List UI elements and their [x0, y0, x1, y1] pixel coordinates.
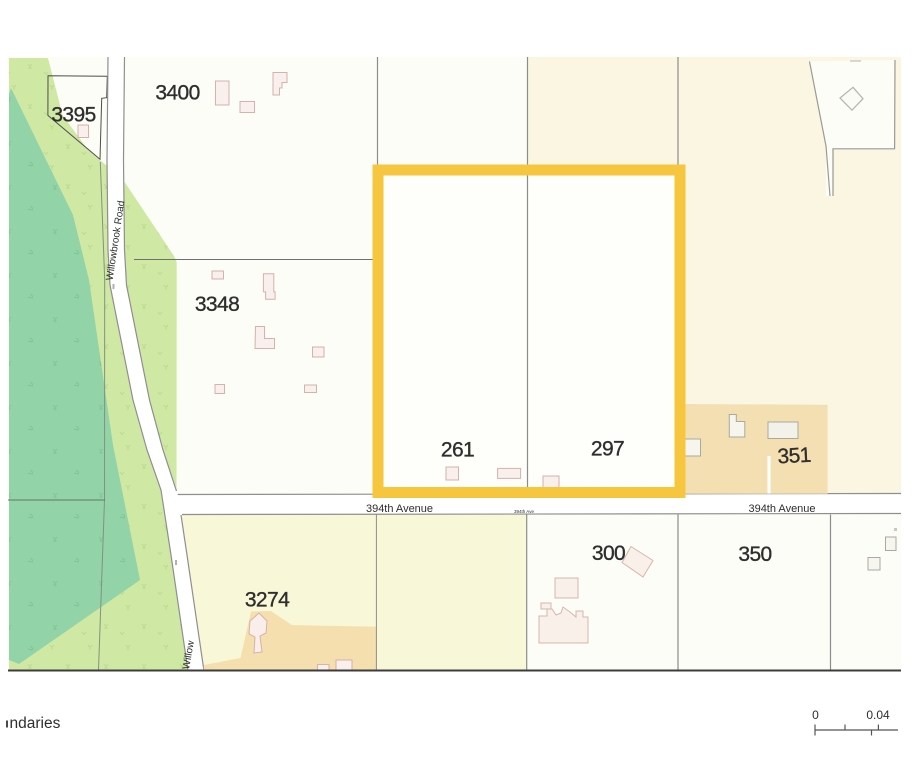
svg-text:3395: 3395: [51, 104, 95, 127]
svg-text:ndaries: ndaries: [10, 715, 61, 732]
svg-text:300: 300: [592, 542, 625, 565]
svg-text:3348: 3348: [195, 293, 239, 316]
svg-text:261: 261: [441, 439, 474, 462]
svg-text:351: 351: [777, 444, 811, 469]
svg-text:350: 350: [738, 543, 771, 566]
svg-text:394th Avenue: 394th Avenue: [366, 503, 433, 515]
svg-text:394th Ave: 394th Ave: [514, 509, 534, 514]
svg-text:3400: 3400: [155, 82, 199, 105]
svg-text:394th Avenue: 394th Avenue: [748, 503, 815, 515]
svg-text:0: 0: [812, 708, 819, 722]
svg-text:3274: 3274: [245, 589, 290, 612]
svg-text:0.04: 0.04: [866, 708, 890, 722]
svg-text:297: 297: [591, 438, 624, 461]
